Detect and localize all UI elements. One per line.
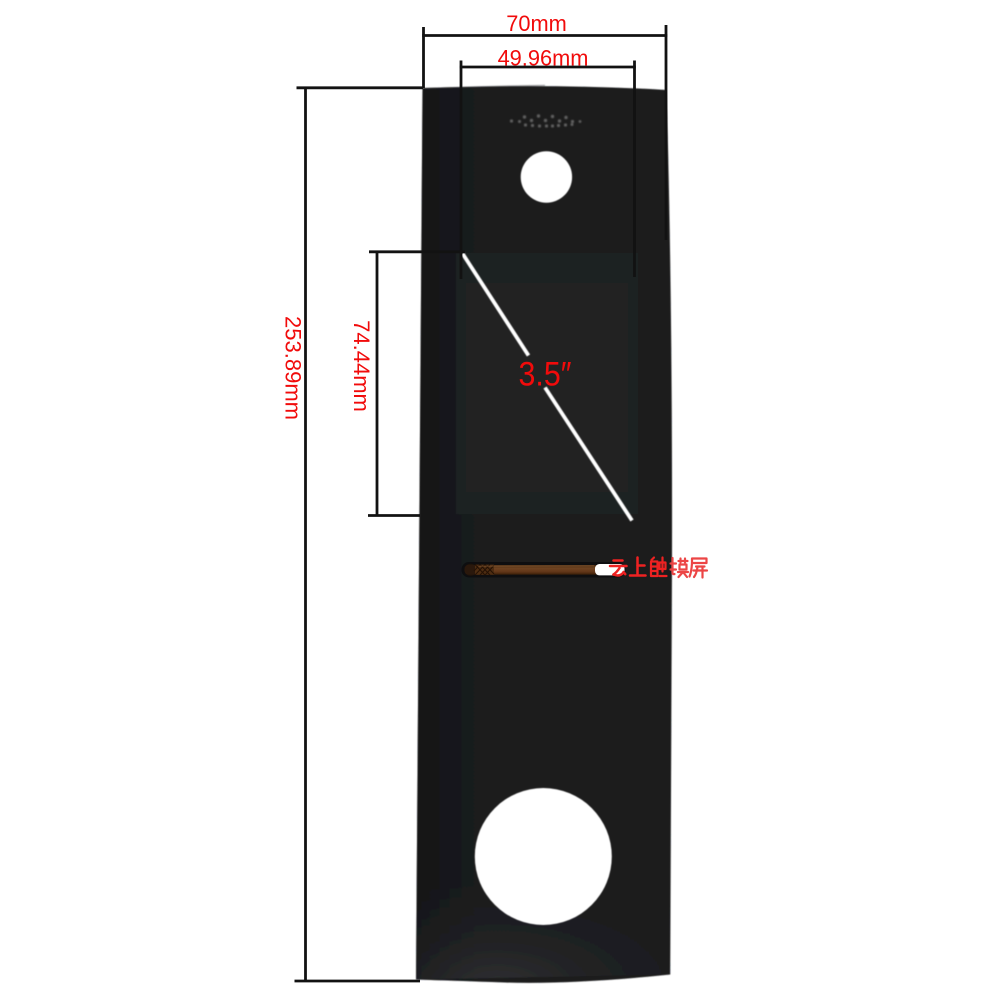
svg-text:49.96mm: 49.96mm: [498, 46, 589, 71]
svg-text:70mm: 70mm: [506, 11, 567, 36]
svg-text:253.89mm: 253.89mm: [281, 316, 306, 420]
svg-text:3.5″: 3.5″: [519, 356, 572, 394]
svg-text:74.44mm: 74.44mm: [349, 320, 374, 412]
